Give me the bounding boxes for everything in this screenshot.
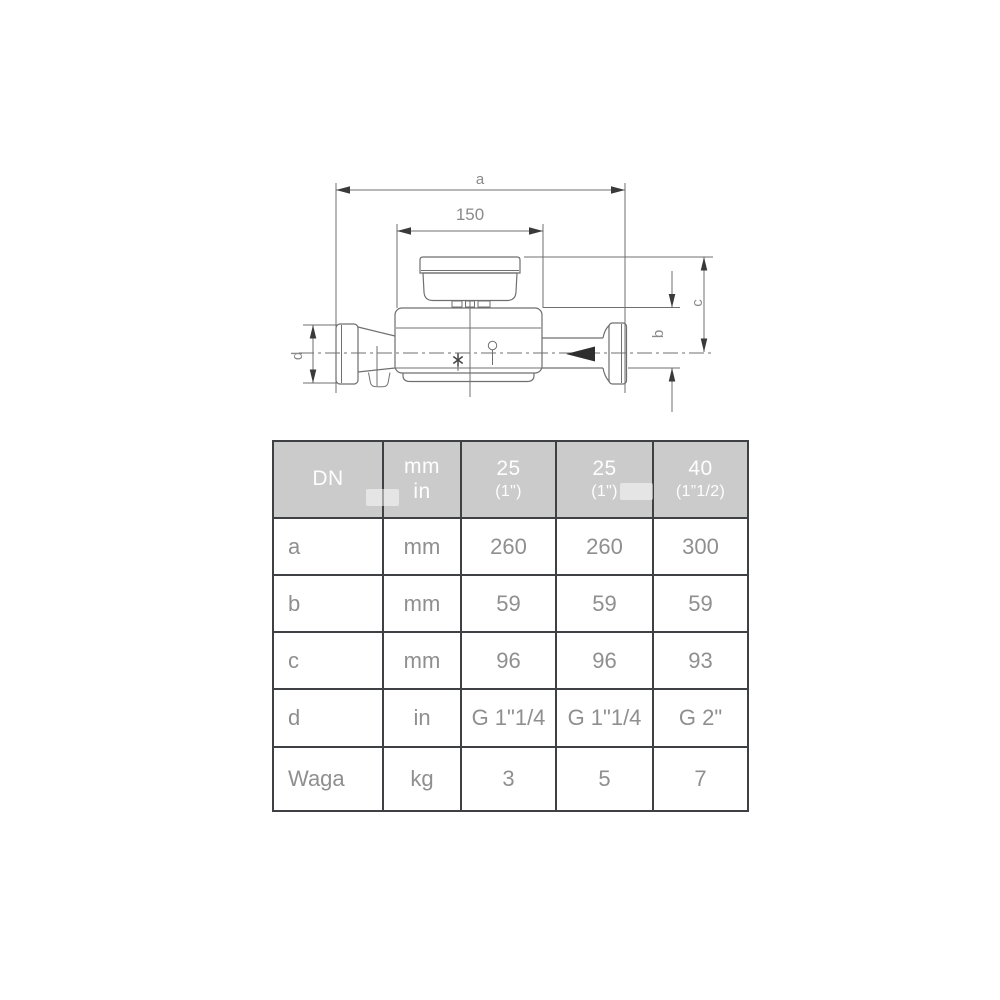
unit-cell: kg bbox=[383, 747, 461, 811]
value-cell: 59 bbox=[461, 575, 556, 632]
table-row-b: b mm 59 59 59 bbox=[273, 575, 748, 632]
dn-label: DN bbox=[274, 467, 382, 492]
unit-cell: mm bbox=[383, 518, 461, 575]
dim-c-label: c bbox=[689, 299, 706, 307]
left-coupling bbox=[336, 324, 395, 387]
size-label: 40 bbox=[654, 457, 747, 482]
spec-table: DN mm in 25 (1") 25 (1") 40 (1”1/2) bbox=[272, 440, 749, 812]
size-label: 25 bbox=[462, 457, 555, 482]
param-cell: b bbox=[273, 575, 383, 632]
header-cell-dn25-1: 25 (1") bbox=[461, 441, 556, 518]
seal-plug-detail bbox=[488, 341, 496, 349]
param-cell: a bbox=[273, 518, 383, 575]
header-cell-dn: DN bbox=[273, 441, 383, 518]
value-cell: 7 bbox=[653, 747, 748, 811]
value-cell: 3 bbox=[461, 747, 556, 811]
header-cell-dn25-2: 25 (1") bbox=[556, 441, 653, 518]
register-head bbox=[420, 257, 520, 307]
dimension-b: b bbox=[543, 271, 680, 412]
value-cell: 260 bbox=[556, 518, 653, 575]
value-cell: G 2" bbox=[653, 689, 748, 747]
value-cell: 59 bbox=[653, 575, 748, 632]
dim-150-label: 150 bbox=[456, 205, 484, 224]
table-header-row: DN mm in 25 (1") 25 (1") 40 (1”1/2) bbox=[273, 441, 748, 518]
value-cell: 5 bbox=[556, 747, 653, 811]
table-row-d: d in G 1"1/4 G 1"1/4 G 2" bbox=[273, 689, 748, 747]
dim-b-label: b bbox=[650, 330, 667, 338]
value-cell: 93 bbox=[653, 632, 748, 689]
header-cell-dn40: 40 (1”1/2) bbox=[653, 441, 748, 518]
inch-label: (1") bbox=[462, 482, 555, 502]
value-cell: 59 bbox=[556, 575, 653, 632]
value-cell: G 1"1/4 bbox=[556, 689, 653, 747]
dim-a-label: a bbox=[476, 171, 485, 188]
unit-cell: mm bbox=[383, 632, 461, 689]
dimension-d: d bbox=[289, 325, 338, 383]
table-row-waga: Waga kg 3 5 7 bbox=[273, 747, 748, 811]
flow-direction-arrow bbox=[566, 347, 595, 362]
water-meter-technical-drawing: a 150 d b bbox=[0, 0, 1000, 438]
value-cell: 260 bbox=[461, 518, 556, 575]
inch-label: (1”1/2) bbox=[654, 482, 747, 502]
table-row-c: c mm 96 96 93 bbox=[273, 632, 748, 689]
unit-in-label: in bbox=[384, 480, 460, 505]
meter-body bbox=[395, 301, 542, 398]
table-row-a: a mm 260 260 300 bbox=[273, 518, 748, 575]
value-cell: 96 bbox=[461, 632, 556, 689]
unit-mm-label: mm bbox=[384, 455, 460, 480]
unit-cell: mm bbox=[383, 575, 461, 632]
value-cell: 96 bbox=[556, 632, 653, 689]
value-cell: G 1"1/4 bbox=[461, 689, 556, 747]
param-cell: d bbox=[273, 689, 383, 747]
size-label: 25 bbox=[557, 457, 652, 482]
value-cell: 300 bbox=[653, 518, 748, 575]
param-cell: c bbox=[273, 632, 383, 689]
unit-cell: in bbox=[383, 689, 461, 747]
header-cell-units: mm in bbox=[383, 441, 461, 518]
inch-label: (1") bbox=[557, 482, 652, 502]
param-cell: Waga bbox=[273, 747, 383, 811]
datasheet-page: a 150 d b bbox=[0, 0, 1000, 1000]
